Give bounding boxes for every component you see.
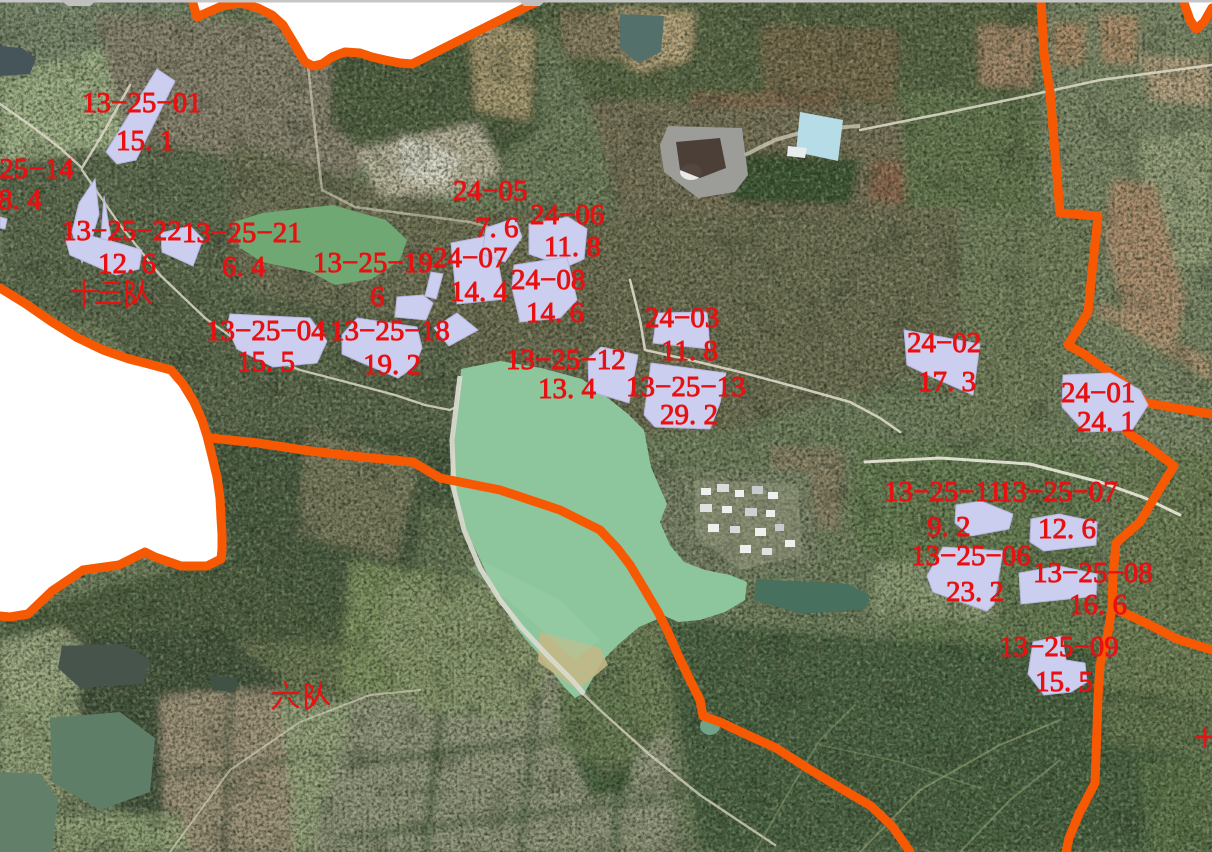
- svg-text:13−25−08: 13−25−08: [1033, 557, 1153, 589]
- svg-text:23. 2: 23. 2: [946, 576, 1004, 608]
- svg-text:13−25−19: 13−25−19: [313, 247, 433, 279]
- svg-text:24−07: 24−07: [433, 242, 507, 274]
- svg-text:17. 3: 17. 3: [918, 366, 976, 398]
- svg-text:6: 6: [370, 281, 385, 313]
- svg-text:13−25−01: 13−25−01: [82, 87, 202, 119]
- svg-text:15. 1: 15. 1: [116, 125, 174, 157]
- svg-text:12. 6: 12. 6: [1038, 513, 1096, 545]
- svg-text:13−25−07: 13−25−07: [998, 476, 1118, 508]
- svg-text:13−25−18: 13−25−18: [330, 315, 450, 347]
- svg-text:24−05: 24−05: [453, 175, 527, 207]
- svg-text:13−25−11: 13−25−11: [884, 476, 1003, 508]
- svg-text:29. 2: 29. 2: [660, 399, 718, 431]
- svg-text:24−08: 24−08: [511, 264, 585, 296]
- svg-text:24−06: 24−06: [530, 199, 604, 231]
- svg-text:14. 4: 14. 4: [450, 276, 509, 308]
- svg-text:24−03: 24−03: [645, 302, 719, 334]
- svg-text:12. 6: 12. 6: [98, 248, 156, 280]
- svg-text:13−25−14: 13−25−14: [0, 153, 74, 185]
- svg-text:8. 4: 8. 4: [0, 184, 42, 216]
- svg-text:11. 8: 11. 8: [661, 335, 718, 367]
- svg-text:15. 5: 15. 5: [1035, 666, 1093, 698]
- svg-text:7. 6: 7. 6: [475, 212, 519, 244]
- svg-text:6. 4: 6. 4: [222, 251, 266, 283]
- svg-text:24. 1: 24. 1: [1077, 406, 1135, 438]
- svg-text:13−25−22: 13−25−22: [62, 215, 182, 247]
- svg-text:24−02: 24−02: [907, 327, 981, 359]
- svg-text:13−25−21: 13−25−21: [182, 217, 302, 249]
- svg-text:13−25−12: 13−25−12: [506, 344, 626, 376]
- svg-text:14. 6: 14. 6: [526, 297, 584, 329]
- svg-text:13−25−09: 13−25−09: [999, 631, 1119, 663]
- svg-text:13−25−06: 13−25−06: [911, 540, 1031, 572]
- svg-text:11. 8: 11. 8: [544, 231, 601, 263]
- svg-text:15. 5: 15. 5: [237, 346, 295, 378]
- svg-text:13−25−04: 13−25−04: [206, 315, 326, 347]
- svg-text:19. 2: 19. 2: [363, 349, 421, 381]
- svg-text:16. 6: 16. 6: [1069, 589, 1127, 621]
- svg-text:9. 2: 9. 2: [927, 511, 971, 543]
- svg-text:13. 4: 13. 4: [538, 373, 597, 405]
- svg-text:24−01: 24−01: [1061, 377, 1135, 409]
